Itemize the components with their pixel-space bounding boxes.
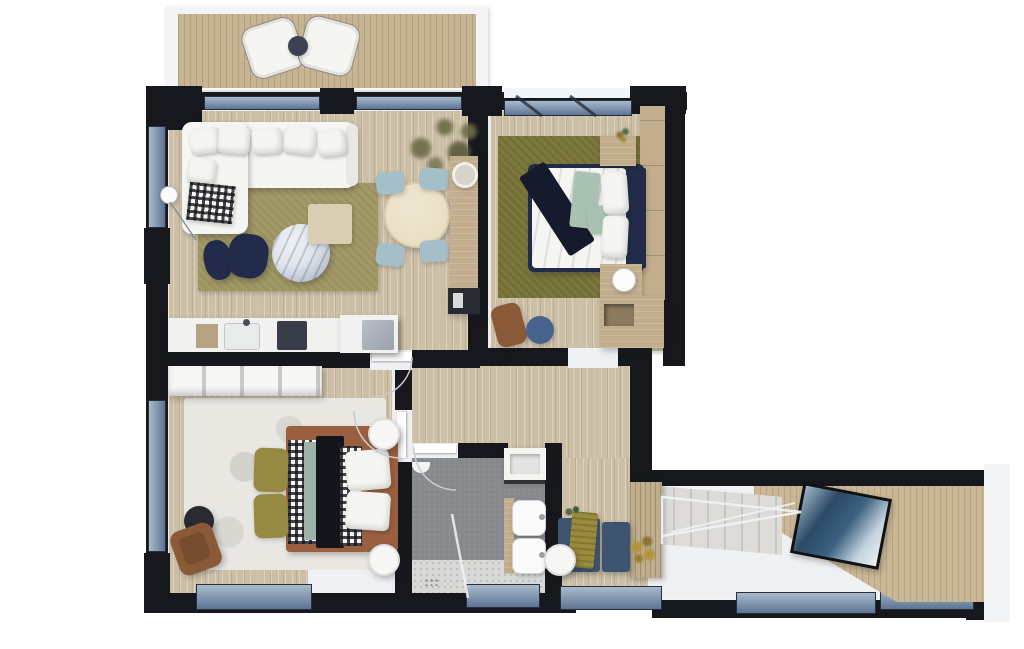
- overlay-lines: [0, 0, 1024, 649]
- door-arc-bathroom: [414, 448, 456, 490]
- shower-glass-screen: [452, 514, 468, 598]
- stair-balustrade-brace: [672, 503, 795, 532]
- floor-lamp-stem: [170, 202, 196, 240]
- master-window-mullion-2: [570, 96, 596, 116]
- stair-glass-balustrade: [662, 497, 801, 544]
- master-window-mullion-1: [516, 96, 542, 116]
- floor-plan: [0, 0, 1024, 649]
- door-arc-bedroom2: [354, 411, 401, 458]
- door-arc-living: [372, 357, 412, 397]
